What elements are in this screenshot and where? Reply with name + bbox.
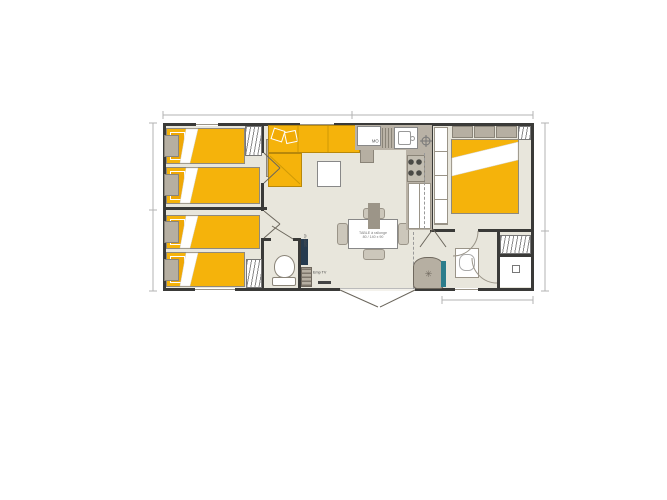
entrance-door-swing (340, 290, 415, 307)
nightstand-3 (164, 221, 179, 243)
sofa-cushion-2 (284, 130, 298, 144)
fridge-cabinet (408, 183, 431, 229)
wall-bedroom-divider (163, 207, 267, 210)
water-heater: ✳ (413, 257, 444, 289)
master-closet (434, 127, 448, 225)
counter-dashed-edge (424, 153, 425, 229)
sofa-chaise-section (268, 153, 302, 187)
shower (500, 257, 531, 287)
bed-single-3 (166, 215, 260, 249)
wall-heater-label: 1000 W (304, 234, 308, 247)
sink-drain (410, 136, 415, 141)
dining-chair-bottom (363, 249, 385, 260)
microwave: MO (357, 126, 381, 146)
wardrobe-bathroom (500, 235, 531, 254)
entrance-opening (340, 288, 415, 291)
dining-table-label-line2: 80 / 140 x 90 (351, 236, 394, 240)
stove (407, 155, 425, 182)
window-bottom-1 (195, 288, 235, 291)
tv-spot-label: Emp TV (313, 271, 326, 275)
kitchen-sink (394, 127, 418, 149)
wall-bedrooms-living-2 (261, 183, 264, 211)
dimension-bottom (442, 296, 533, 304)
washbasin (455, 248, 479, 278)
window-bottom-2 (455, 288, 478, 291)
window-top-1 (196, 123, 218, 126)
coffee-table (317, 161, 341, 187)
washbasin-bowl (459, 254, 475, 271)
dining-table-label: TABLE à rallonge 80 / 140 x 90 (351, 232, 394, 240)
wall-master-bottom-a (430, 229, 455, 232)
headboard-cushion-3 (496, 126, 517, 138)
toilet-tank (272, 277, 296, 286)
tv-icon (318, 281, 331, 284)
bed-double-master (451, 139, 519, 214)
wall-right (531, 123, 534, 291)
dimension-left (149, 123, 157, 291)
wardrobe-bedroom-2 (246, 259, 262, 288)
headboard-cushion-1 (452, 126, 473, 138)
floorplan-canvas: TABLE à rallonge 80 / 140 x 90 1000 W Em… (0, 0, 667, 500)
dimension-right (541, 123, 549, 291)
floor-plan: TABLE à rallonge 80 / 140 x 90 1000 W Em… (163, 123, 534, 291)
water-heater-teal-strip (441, 261, 446, 287)
partition-stub (368, 203, 380, 229)
wall-master-bottom-b (478, 229, 533, 232)
dimension-top (163, 111, 533, 119)
nightstand-1 (164, 135, 179, 157)
microwave-label: MO (372, 140, 379, 144)
nightstand-2 (164, 174, 179, 196)
shelf-unit (301, 267, 312, 287)
dining-chair-left (337, 223, 348, 245)
wardrobe-bedroom-1 (245, 126, 262, 156)
bed-single-2 (166, 167, 260, 204)
sink-drainer (382, 128, 393, 148)
wardrobe-master (518, 126, 531, 140)
shower-drain (512, 265, 520, 273)
headboard-cushion-2 (474, 126, 495, 138)
toilet-bowl (274, 255, 295, 278)
wall-wc-top-a (261, 238, 271, 241)
nightstand-4 (164, 259, 179, 281)
